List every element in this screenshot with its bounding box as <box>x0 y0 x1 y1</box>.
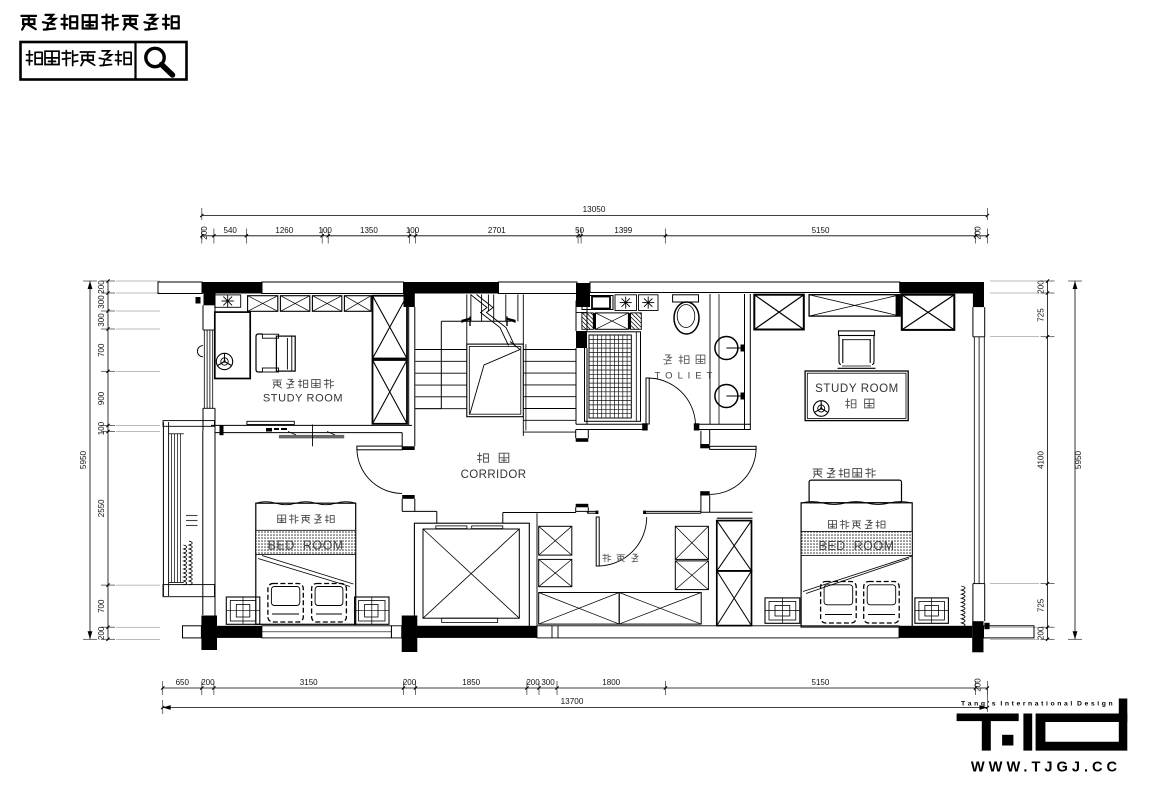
svg-text:200: 200 <box>200 226 209 240</box>
svg-text:200: 200 <box>1037 280 1046 294</box>
svg-text:200: 200 <box>1037 626 1046 640</box>
svg-text:50: 50 <box>575 226 584 235</box>
svg-text:300: 300 <box>97 295 106 309</box>
svg-text:1260: 1260 <box>275 226 293 235</box>
svg-text:900: 900 <box>97 391 106 405</box>
svg-text:100: 100 <box>406 226 420 235</box>
svg-text:200: 200 <box>973 678 982 692</box>
svg-text:2701: 2701 <box>488 226 506 235</box>
svg-text:WWW.TJGJ.CC: WWW.TJGJ.CC <box>971 760 1121 776</box>
svg-text:300: 300 <box>541 678 555 687</box>
svg-text:CORRIDOR: CORRIDOR <box>461 469 527 481</box>
svg-text:700: 700 <box>97 343 106 357</box>
svg-text:200: 200 <box>526 678 540 687</box>
svg-text:STUDY ROOM: STUDY ROOM <box>815 383 899 395</box>
svg-text:T O L I E T: T O L I E T <box>655 371 714 382</box>
svg-text:3150: 3150 <box>300 678 318 687</box>
svg-text:200: 200 <box>973 226 982 240</box>
svg-text:1399: 1399 <box>614 226 632 235</box>
svg-text:13700: 13700 <box>561 697 584 706</box>
svg-text:5150: 5150 <box>812 226 830 235</box>
svg-text:BED ROOM: BED ROOM <box>818 539 894 553</box>
svg-text:4100: 4100 <box>1037 451 1046 469</box>
svg-text:5950: 5950 <box>79 450 88 469</box>
svg-text:650: 650 <box>176 678 190 687</box>
svg-text:200: 200 <box>97 280 106 294</box>
svg-text:725: 725 <box>1037 598 1046 612</box>
svg-text:200: 200 <box>97 626 106 640</box>
svg-text:725: 725 <box>1037 308 1046 322</box>
svg-text:1800: 1800 <box>602 678 620 687</box>
svg-text:5950: 5950 <box>1074 450 1083 469</box>
svg-text:100: 100 <box>319 226 333 235</box>
svg-text:STUDY ROOM: STUDY ROOM <box>263 393 343 405</box>
svg-text:300: 300 <box>97 313 106 327</box>
svg-text:200: 200 <box>403 678 417 687</box>
svg-text:2550: 2550 <box>97 499 106 517</box>
svg-text:700: 700 <box>97 599 106 613</box>
svg-text:1350: 1350 <box>360 226 378 235</box>
svg-text:1850: 1850 <box>462 678 480 687</box>
svg-text:200: 200 <box>201 678 215 687</box>
svg-text:BED ROOM: BED ROOM <box>268 539 344 553</box>
svg-text:T a n g ' s I n t e r n a t i: T a n g ' s I n t e r n a t i o n a l D … <box>961 701 1113 708</box>
svg-text:5150: 5150 <box>812 678 830 687</box>
svg-text:13050: 13050 <box>583 205 606 214</box>
svg-text:540: 540 <box>224 226 238 235</box>
svg-text:100: 100 <box>97 421 106 435</box>
